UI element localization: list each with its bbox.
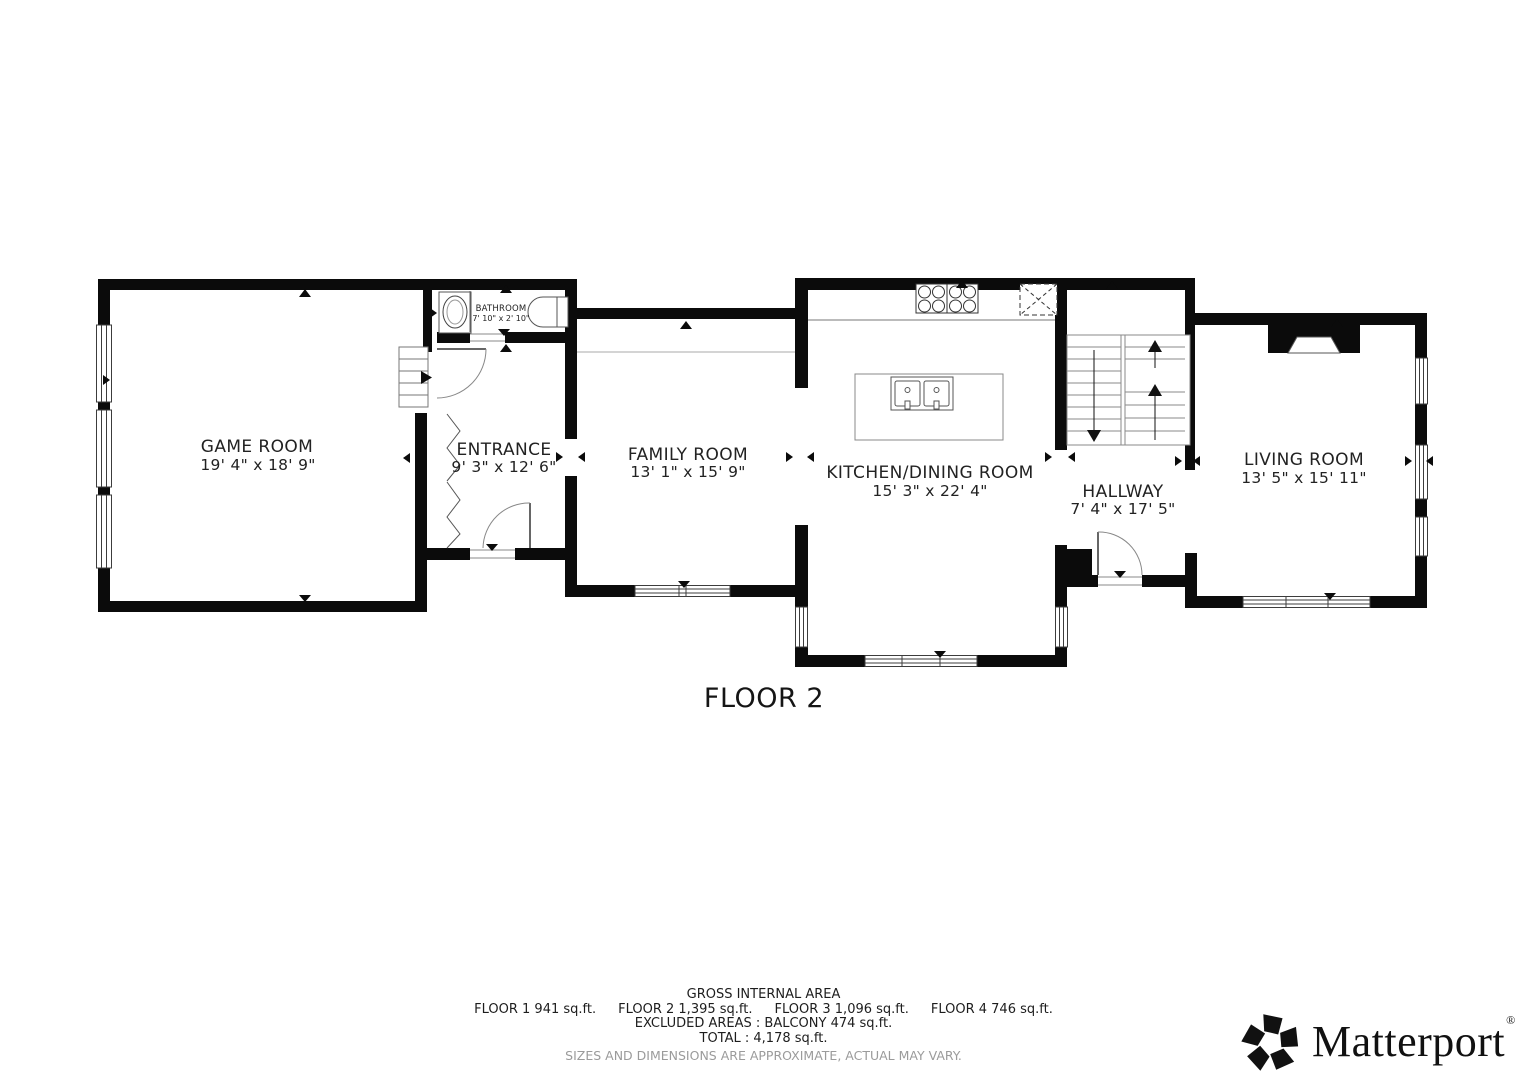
door-swing xyxy=(437,349,486,398)
marker-left-icon xyxy=(578,452,585,462)
room-label-family-room: FAMILY ROOM 13' 1" x 15' 9" xyxy=(628,445,748,481)
window xyxy=(1243,596,1370,608)
window xyxy=(1416,358,1428,404)
floor-plan: GAME ROOM 19' 4" x 18' 9" ENTRANCE 9' 3"… xyxy=(0,0,1527,740)
room-name: BATHROOM xyxy=(476,304,527,314)
footer-floor-area: FLOOR 1 941 sq.ft. xyxy=(474,1003,596,1018)
marker-right-icon xyxy=(556,452,563,462)
floor-title: FLOOR 2 xyxy=(704,683,824,714)
room-name: LIVING ROOM xyxy=(1244,450,1364,470)
room-dims: 13' 1" x 15' 9" xyxy=(630,463,745,481)
logo-text: Matterport xyxy=(1312,1017,1505,1066)
stove-icon xyxy=(916,284,978,313)
window xyxy=(796,607,808,647)
floorplan-page: GAME ROOM 19' 4" x 18' 9" ENTRANCE 9' 3"… xyxy=(0,0,1527,1080)
room-dims: 13' 5" x 15' 11" xyxy=(1241,469,1367,487)
room-label-bathroom: BATHROOM 7' 10" x 2' 10" xyxy=(472,304,529,323)
room-label-hallway: HALLWAY 7' 4" x 17' 5" xyxy=(1070,482,1175,518)
footer-floor-area: FLOOR 4 746 sq.ft. xyxy=(931,1003,1053,1018)
footer-floor-area: FLOOR 2 1,395 sq.ft. xyxy=(618,1003,752,1018)
room-name: HALLWAY xyxy=(1082,482,1163,502)
room-label-kitchen-dining: KITCHEN/DINING ROOM 15' 3" x 22' 4" xyxy=(826,463,1033,500)
toilet-icon xyxy=(439,292,471,333)
stairs-main xyxy=(1067,335,1190,445)
window xyxy=(97,410,112,487)
matterport-pinwheel-icon xyxy=(1240,1012,1302,1074)
window xyxy=(635,585,730,597)
marker-up-icon xyxy=(680,321,692,329)
window xyxy=(97,325,112,402)
footer-title: GROSS INTERNAL AREA xyxy=(0,988,1527,1003)
threshold xyxy=(470,332,505,343)
stairs-entry xyxy=(399,347,432,407)
room-dims: 7' 10" x 2' 10" xyxy=(472,314,529,323)
marker-right-icon xyxy=(786,452,793,462)
skylight-icon xyxy=(1020,284,1057,315)
room-label-entrance: ENTRANCE 9' 3" x 12' 6" xyxy=(451,440,556,476)
room-dims: 7' 4" x 17' 5" xyxy=(1070,500,1175,518)
marker-right-icon xyxy=(1175,456,1182,466)
window xyxy=(865,655,977,667)
marker-up-icon xyxy=(299,289,311,297)
room-name: ENTRANCE xyxy=(456,440,551,460)
marker-right-icon xyxy=(1405,456,1412,466)
room-dims: 19' 4" x 18' 9" xyxy=(200,456,315,474)
room-dims: 9' 3" x 12' 6" xyxy=(451,458,556,476)
window xyxy=(1416,445,1428,499)
kitchen-island xyxy=(855,374,1003,440)
matterport-logo: Matterport® xyxy=(1240,1012,1515,1074)
room-name: GAME ROOM xyxy=(201,437,313,457)
room-dims: 15' 3" x 22' 4" xyxy=(872,482,987,500)
double-sink-icon xyxy=(891,377,953,410)
bathtub-icon xyxy=(528,297,568,327)
footer-floor-area: FLOOR 3 1,096 sq.ft. xyxy=(775,1003,909,1018)
fireplace-icon xyxy=(1288,337,1340,353)
window xyxy=(97,495,112,568)
bifold-door xyxy=(447,414,460,548)
window xyxy=(1056,607,1068,647)
room-label-game-room: GAME ROOM 19' 4" x 18' 9" xyxy=(200,437,315,474)
matterport-wordmark: Matterport® xyxy=(1312,1016,1515,1067)
door-swing xyxy=(1098,532,1142,575)
door-swing xyxy=(483,503,530,548)
room-name: FAMILY ROOM xyxy=(628,445,748,465)
marker-left-icon xyxy=(403,453,410,463)
marker-left-icon xyxy=(807,452,814,462)
window xyxy=(1416,517,1428,556)
marker-left-icon xyxy=(1068,452,1075,462)
marker-up-icon xyxy=(500,344,512,352)
windows xyxy=(97,325,1428,667)
marker-right-icon xyxy=(1045,452,1052,462)
marker-right-icon xyxy=(430,308,437,318)
registered-mark: ® xyxy=(1506,1013,1516,1027)
marker-down-icon xyxy=(299,595,311,602)
room-name: KITCHEN/DINING ROOM xyxy=(826,463,1033,483)
room-label-living-room: LIVING ROOM 13' 5" x 15' 11" xyxy=(1241,450,1367,487)
